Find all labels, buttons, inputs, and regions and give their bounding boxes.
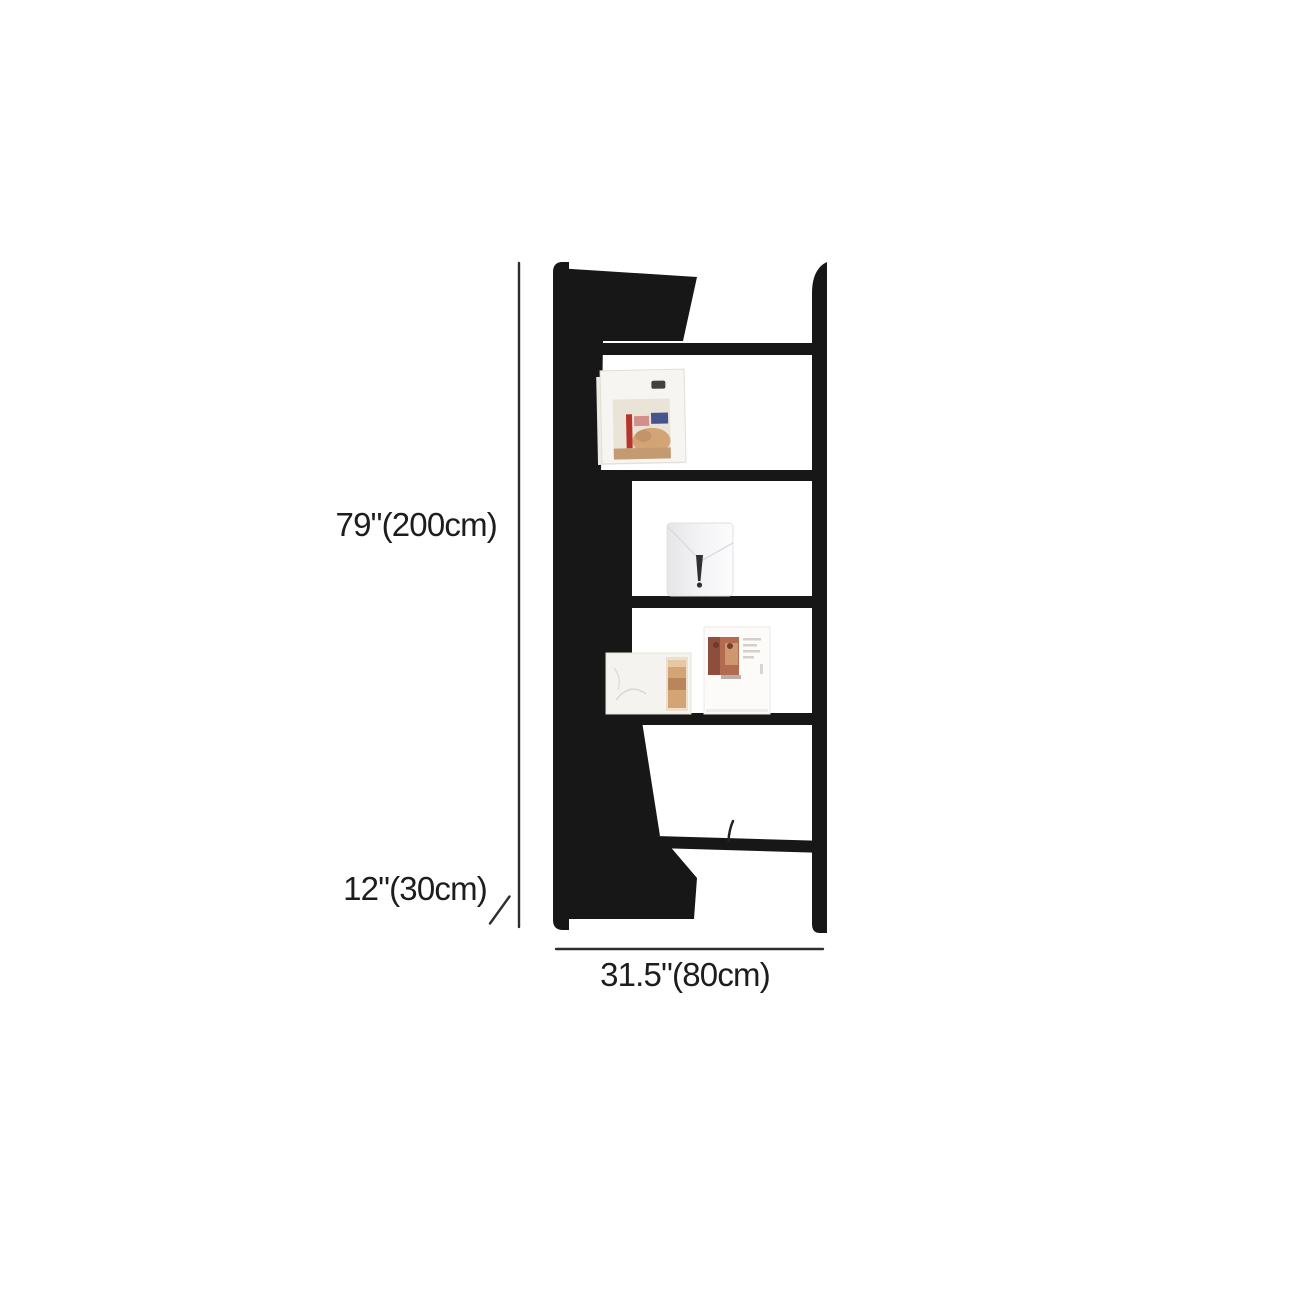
width-dimension-label: 31.5"(80cm) [585,956,785,994]
product-dimension-image: 79"(200cm) 12"(30cm) 31.5"(80cm) [0,0,1300,1300]
depth-tick-line [490,897,510,924]
photo-magazine-shelf4 [704,627,770,714]
left-panel-section-3 [556,470,632,599]
bookshelf-diagram-svg [0,0,1300,1300]
magazine-logo [651,381,665,389]
shelf-bar-1 [556,343,827,355]
bookshelf-frame [553,262,827,933]
pen-mark-shelf5 [729,821,734,841]
left-panel-top-section [556,268,697,341]
right-rail [812,262,827,933]
vase-card-shelf3 [667,523,733,596]
magazine-shelf2 [596,369,686,465]
height-dimension-label: 79"(200cm) [297,506,497,544]
shelf-bar-4 [556,713,827,725]
depth-dimension-label: 12"(30cm) [297,870,487,908]
shelf-bar-3 [556,596,827,608]
magazine-blue-patch [651,412,668,423]
left-panel-bottom-section [556,837,697,919]
magazine-red-stripe [626,414,633,448]
left-panel-section-5 [556,715,660,836]
left-panel-section-2 [556,341,603,472]
shelf-bar-2 [556,470,827,481]
sketch-card-shelf4 [606,653,691,714]
